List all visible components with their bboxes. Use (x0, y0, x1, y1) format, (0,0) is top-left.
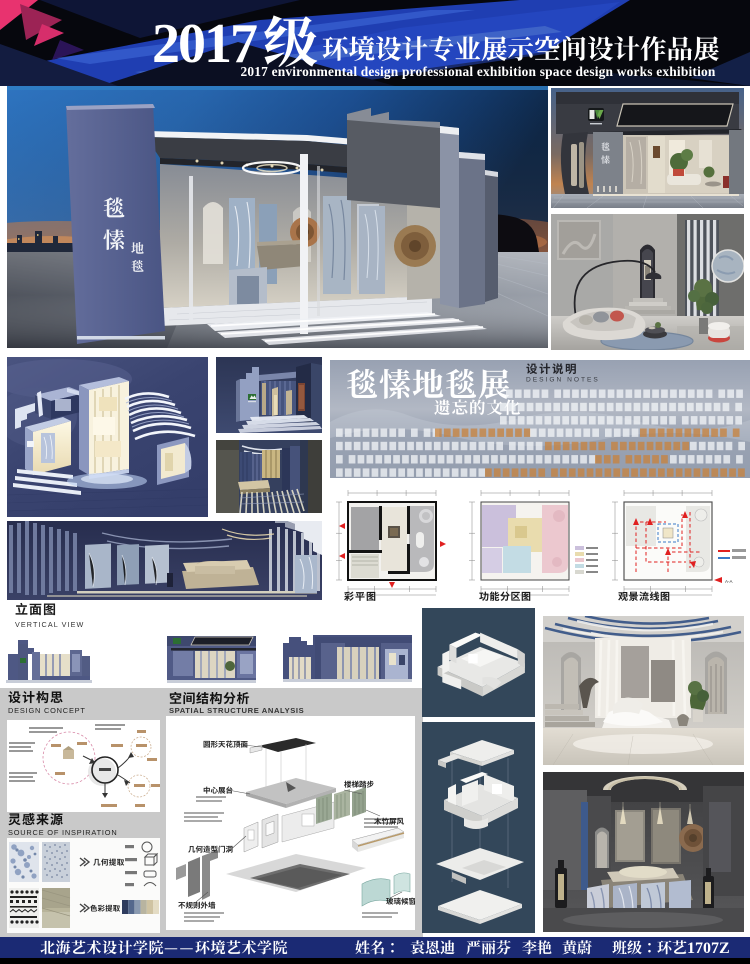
svg-text:1707Z: 1707Z (687, 940, 730, 957)
